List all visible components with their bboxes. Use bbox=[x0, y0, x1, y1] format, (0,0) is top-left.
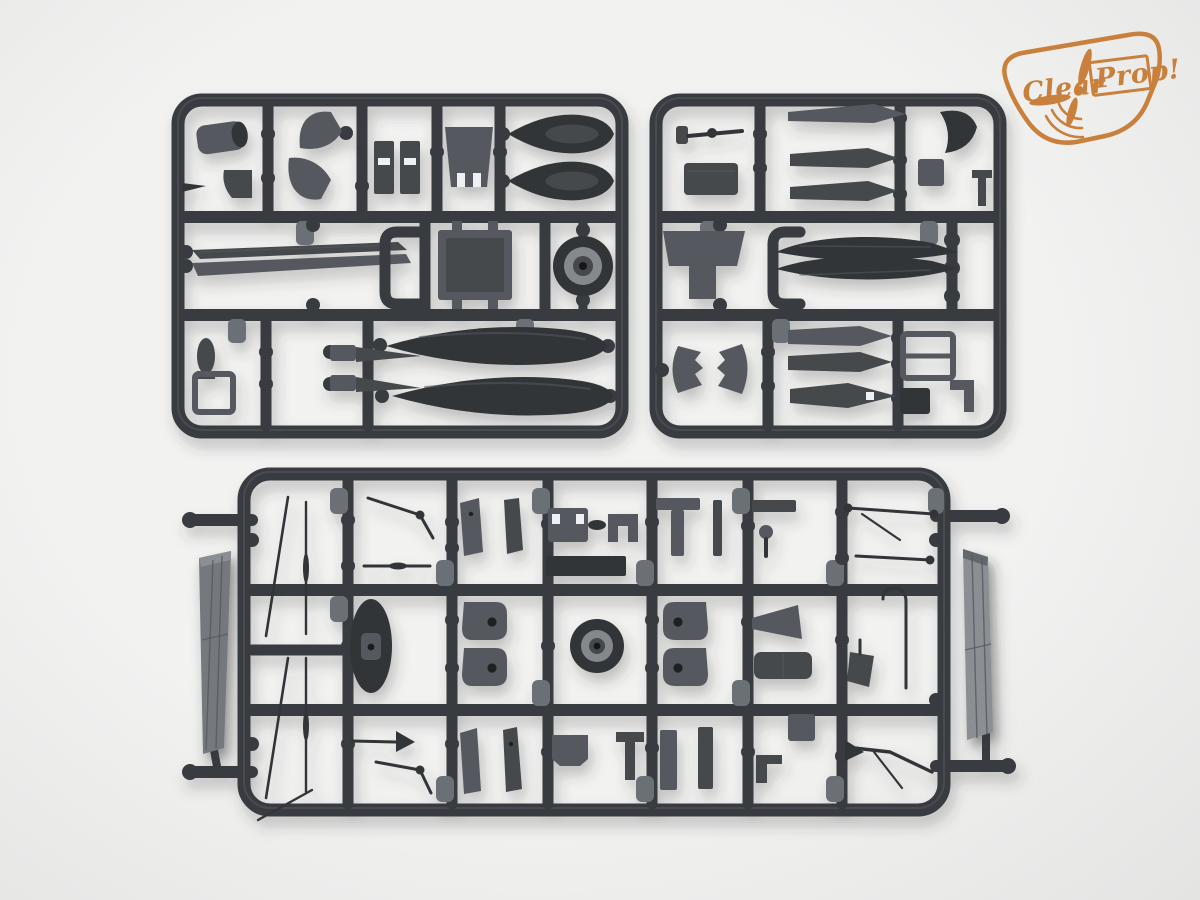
cowl-flap-part bbox=[940, 111, 977, 153]
spinner-backplate-part bbox=[350, 599, 392, 693]
canopy-frame-part bbox=[903, 334, 953, 378]
seat-parts bbox=[552, 732, 644, 780]
frame-opening-part bbox=[195, 374, 233, 412]
cowl-flap-paddle-parts bbox=[462, 602, 507, 686]
wing-strip-parts bbox=[788, 326, 896, 408]
canoe-tank-part bbox=[386, 327, 613, 415]
cowling-tube-part bbox=[195, 120, 250, 156]
cowl-ring-half-parts bbox=[673, 344, 748, 394]
wedge-part bbox=[223, 170, 252, 198]
slab-parts bbox=[660, 727, 713, 790]
spar-plate-part bbox=[546, 556, 626, 576]
model-kit-sprues-photo: Clear Prop! bbox=[0, 0, 1200, 900]
bent-rod-part bbox=[845, 740, 932, 788]
t-bracket-part bbox=[972, 170, 992, 206]
small-bracket-parts bbox=[756, 714, 815, 783]
control-wire-part bbox=[364, 498, 433, 570]
step-bracket-part bbox=[950, 380, 974, 412]
funnel-part bbox=[752, 605, 812, 679]
aerial-rod-parts bbox=[844, 504, 939, 565]
ribbed-block-part bbox=[684, 163, 738, 195]
antenna-rod-parts bbox=[258, 497, 312, 820]
table-slab-parts bbox=[656, 498, 722, 556]
runner-u-piece bbox=[385, 232, 420, 304]
small-block-part bbox=[918, 159, 944, 186]
hook-wire-part bbox=[847, 588, 906, 688]
radiator-part bbox=[438, 221, 512, 309]
sprue-top-left bbox=[178, 98, 622, 432]
cowl-fan-lower-part bbox=[288, 158, 331, 200]
small-lever-parts bbox=[752, 500, 796, 556]
small-spike-part bbox=[182, 183, 206, 192]
photo-stage: Clear Prop! bbox=[0, 0, 1200, 900]
drop-tank-half-part bbox=[508, 115, 614, 154]
cowl-flap-paddle-parts bbox=[663, 602, 708, 686]
cowl-fan-upper-part bbox=[300, 112, 342, 149]
tailplane-strip-parts bbox=[788, 104, 906, 201]
bracket-pair-part bbox=[374, 141, 420, 194]
wheel-part bbox=[553, 222, 613, 310]
clearprop-logo: Clear Prop! bbox=[1004, 34, 1183, 143]
ski-blade-parts bbox=[192, 242, 411, 276]
engine-mount-parts bbox=[548, 508, 638, 542]
cone-rod-part bbox=[352, 731, 431, 793]
wing-slab-right-part bbox=[963, 549, 993, 740]
sprue-top-right bbox=[655, 98, 1000, 432]
small-box-part bbox=[900, 388, 930, 414]
center-wheel-part bbox=[570, 619, 624, 673]
firewall-part bbox=[445, 127, 493, 187]
wing-center-part bbox=[663, 231, 745, 299]
wing-slab-left-part bbox=[199, 551, 231, 754]
drop-tank-half-part bbox=[508, 162, 614, 201]
linkage-part bbox=[676, 126, 742, 144]
gear-leg-part bbox=[330, 345, 421, 392]
fuselage-half-parts bbox=[776, 237, 958, 280]
sprue-bottom bbox=[182, 472, 1016, 820]
blade-slab-parts bbox=[460, 498, 523, 794]
